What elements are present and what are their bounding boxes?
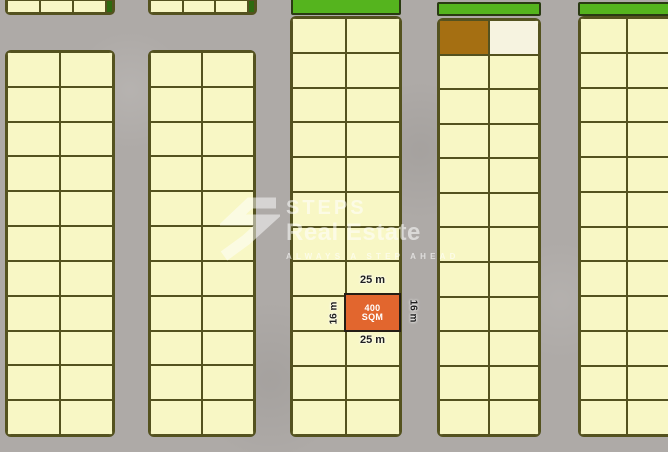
- land-parcel: [150, 52, 202, 87]
- green-strip-3: [578, 2, 668, 16]
- land-parcel: [580, 122, 627, 157]
- land-parcel: [7, 261, 60, 296]
- land-parcel: [202, 191, 254, 226]
- land-parcel: [202, 331, 254, 366]
- green-parcel-sliver: [106, 0, 113, 13]
- land-parcel: [60, 122, 113, 157]
- land-parcel: [150, 226, 202, 261]
- land-parcel: [150, 191, 202, 226]
- land-parcel: [202, 122, 254, 157]
- land-parcel: [627, 88, 668, 123]
- land-parcel: [580, 227, 627, 262]
- land-parcel: [489, 89, 539, 124]
- land-parcel: [346, 192, 400, 227]
- land-parcel: [489, 366, 539, 401]
- land-parcel: [150, 156, 202, 191]
- land-parcel: [346, 122, 400, 157]
- land-parcel: [150, 365, 202, 400]
- land-parcel: [580, 400, 627, 435]
- highlight-area-line2: SQM: [362, 313, 383, 322]
- land-parcel: [439, 55, 489, 90]
- land-parcel: [40, 0, 73, 13]
- land-parcel: [292, 331, 346, 366]
- land-parcel: [439, 124, 489, 159]
- land-parcel: [60, 156, 113, 191]
- land-parcel: [489, 400, 539, 435]
- land-parcel: [489, 262, 539, 297]
- land-parcel: [292, 157, 346, 192]
- land-parcel: [60, 87, 113, 122]
- land-parcel: [439, 89, 489, 124]
- land-parcel: [150, 400, 202, 435]
- land-parcel: [202, 52, 254, 87]
- land-parcel: [292, 53, 346, 88]
- land-parcel: [580, 366, 627, 401]
- land-parcel: [439, 366, 489, 401]
- land-parcel: [202, 400, 254, 435]
- land-parcel: [580, 53, 627, 88]
- land-parcel: [580, 157, 627, 192]
- land-parcel: [580, 296, 627, 331]
- land-parcel: [202, 296, 254, 331]
- land-parcel: [202, 261, 254, 296]
- land-parcel: [7, 296, 60, 331]
- land-parcel: [439, 193, 489, 228]
- land-parcel: [7, 400, 60, 435]
- land-parcel: [439, 331, 489, 366]
- land-parcel: [7, 0, 40, 13]
- land-parcel: [439, 262, 489, 297]
- land-parcel: [627, 331, 668, 366]
- land-parcel: [627, 53, 668, 88]
- land-parcel: [7, 87, 60, 122]
- land-parcel: [202, 365, 254, 400]
- land-parcel: [627, 366, 668, 401]
- dimension-label-bottom: 25 m: [344, 334, 401, 346]
- green-strip-1: [291, 0, 401, 15]
- land-parcel: [580, 261, 627, 296]
- land-parcel: [439, 400, 489, 435]
- land-parcel: [292, 261, 346, 296]
- block-1-top: [5, 0, 115, 15]
- land-parcel: [7, 156, 60, 191]
- land-parcel: [439, 227, 489, 262]
- land-parcel: [7, 365, 60, 400]
- land-parcel: [346, 227, 400, 262]
- land-parcel: [60, 191, 113, 226]
- green-strip-2: [437, 2, 541, 16]
- land-parcel: [7, 331, 60, 366]
- land-parcel: [489, 20, 539, 55]
- land-parcel: [292, 400, 346, 435]
- green-parcel-sliver: [248, 0, 255, 13]
- land-parcel: [346, 400, 400, 435]
- land-parcel: [150, 0, 183, 13]
- land-parcel: [292, 88, 346, 123]
- land-parcel: [489, 55, 539, 90]
- land-parcel: [489, 331, 539, 366]
- land-parcel: [627, 192, 668, 227]
- land-parcel: [150, 296, 202, 331]
- land-parcel: [439, 297, 489, 332]
- land-parcel: [627, 157, 668, 192]
- land-parcel: [489, 158, 539, 193]
- land-parcel: [60, 226, 113, 261]
- land-parcel: [60, 296, 113, 331]
- land-parcel: [489, 124, 539, 159]
- block-4: [437, 18, 541, 437]
- land-parcel: [627, 18, 668, 53]
- dimension-label-top: 25 m: [344, 274, 401, 286]
- land-parcel: [346, 366, 400, 401]
- block-2-top: [148, 0, 257, 15]
- land-parcel: [346, 18, 400, 53]
- block-5: [578, 16, 668, 437]
- land-parcel: [60, 261, 113, 296]
- highlighted-plot-400sqm: 400 SQM: [344, 293, 401, 332]
- land-parcel: [60, 365, 113, 400]
- plot-map-canvas: 400 SQM 25 m 25 m 16 m 16 m STEPS Real E…: [0, 0, 668, 452]
- land-parcel: [627, 261, 668, 296]
- land-parcel: [292, 192, 346, 227]
- land-parcel: [346, 88, 400, 123]
- dimension-label-left: 16 m: [329, 302, 340, 325]
- dimension-label-right: 16 m: [408, 300, 419, 323]
- land-parcel: [202, 226, 254, 261]
- land-parcel: [627, 227, 668, 262]
- land-parcel: [215, 0, 248, 13]
- land-parcel: [150, 87, 202, 122]
- land-parcel: [489, 193, 539, 228]
- land-parcel: [627, 400, 668, 435]
- land-parcel: [150, 261, 202, 296]
- land-parcel: [7, 52, 60, 87]
- land-parcel: [346, 157, 400, 192]
- land-parcel: [439, 158, 489, 193]
- land-parcel: [150, 331, 202, 366]
- land-parcel: [202, 87, 254, 122]
- land-parcel: [627, 122, 668, 157]
- land-parcel: [580, 88, 627, 123]
- land-parcel: [60, 331, 113, 366]
- land-parcel: [580, 192, 627, 227]
- land-parcel: [150, 122, 202, 157]
- land-parcel: [183, 0, 216, 13]
- land-parcel: [439, 20, 489, 55]
- block-2: [148, 50, 256, 437]
- land-parcel: [627, 296, 668, 331]
- land-parcel: [489, 227, 539, 262]
- land-parcel: [292, 122, 346, 157]
- land-parcel: [73, 0, 106, 13]
- land-parcel: [202, 156, 254, 191]
- land-parcel: [60, 52, 113, 87]
- land-parcel: [7, 226, 60, 261]
- land-parcel: [7, 122, 60, 157]
- land-parcel: [489, 297, 539, 332]
- land-parcel: [580, 18, 627, 53]
- land-parcel: [60, 400, 113, 435]
- block-1: [5, 50, 115, 437]
- land-parcel: [346, 53, 400, 88]
- land-parcel: [292, 366, 346, 401]
- block-3: [290, 16, 402, 437]
- land-parcel: [580, 331, 627, 366]
- land-parcel: [7, 191, 60, 226]
- land-parcel: [292, 227, 346, 262]
- land-parcel: [292, 18, 346, 53]
